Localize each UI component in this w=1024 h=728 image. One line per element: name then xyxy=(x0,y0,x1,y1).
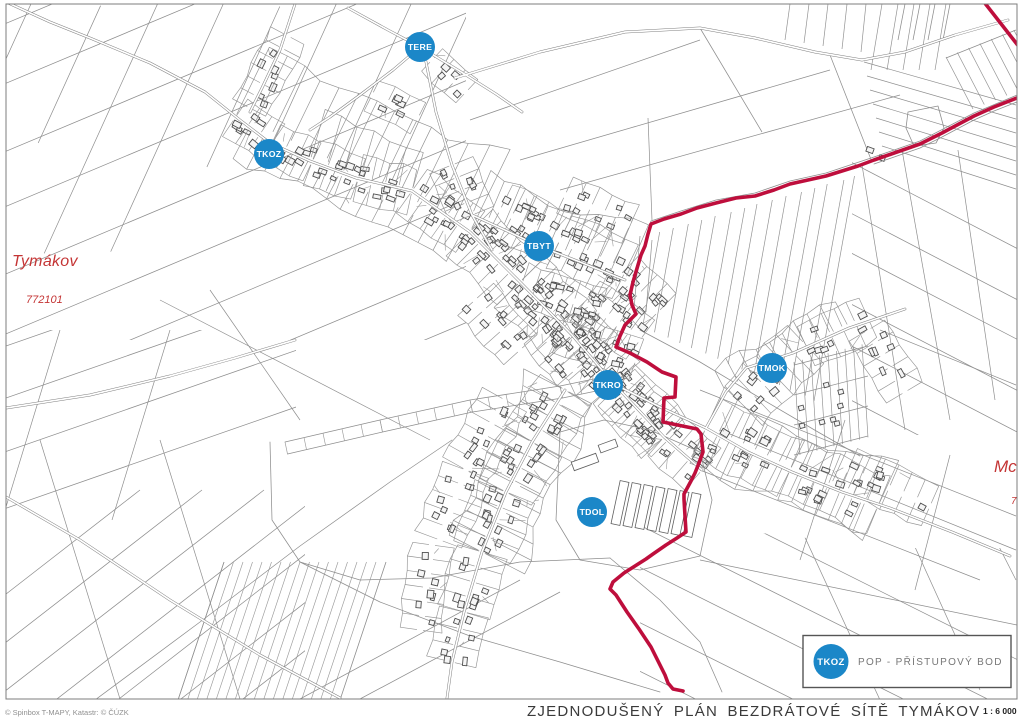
svg-text:TBYT: TBYT xyxy=(527,241,551,251)
svg-text:TERE: TERE xyxy=(408,42,432,52)
svg-text:Tymákov: Tymákov xyxy=(12,253,79,270)
svg-text:1 : 6 000: 1 : 6 000 xyxy=(983,706,1017,716)
svg-text:TMOK: TMOK xyxy=(759,363,786,373)
svg-text:TKOZ: TKOZ xyxy=(257,149,282,159)
svg-text:TKRO: TKRO xyxy=(595,380,621,390)
svg-text:ZJEDNODUŠENÝ PLÁN BEZDRÁTOVÉ S: ZJEDNODUŠENÝ PLÁN BEZDRÁTOVÉ SÍTĚ TYMÁKO… xyxy=(527,703,980,720)
svg-text:7: 7 xyxy=(1011,496,1017,507)
svg-text:TDOL: TDOL xyxy=(580,507,605,517)
svg-text:772101: 772101 xyxy=(26,294,63,306)
svg-text:© Spinbox T-MAPY, Katastr: © Č: © Spinbox T-MAPY, Katastr: © ČÚZK xyxy=(5,708,129,717)
svg-text:POP - PŘÍSTUPOVÝ BOD: POP - PŘÍSTUPOVÝ BOD xyxy=(858,655,1003,668)
svg-text:Mc: Mc xyxy=(994,457,1017,476)
svg-text:TKOZ: TKOZ xyxy=(817,657,844,668)
